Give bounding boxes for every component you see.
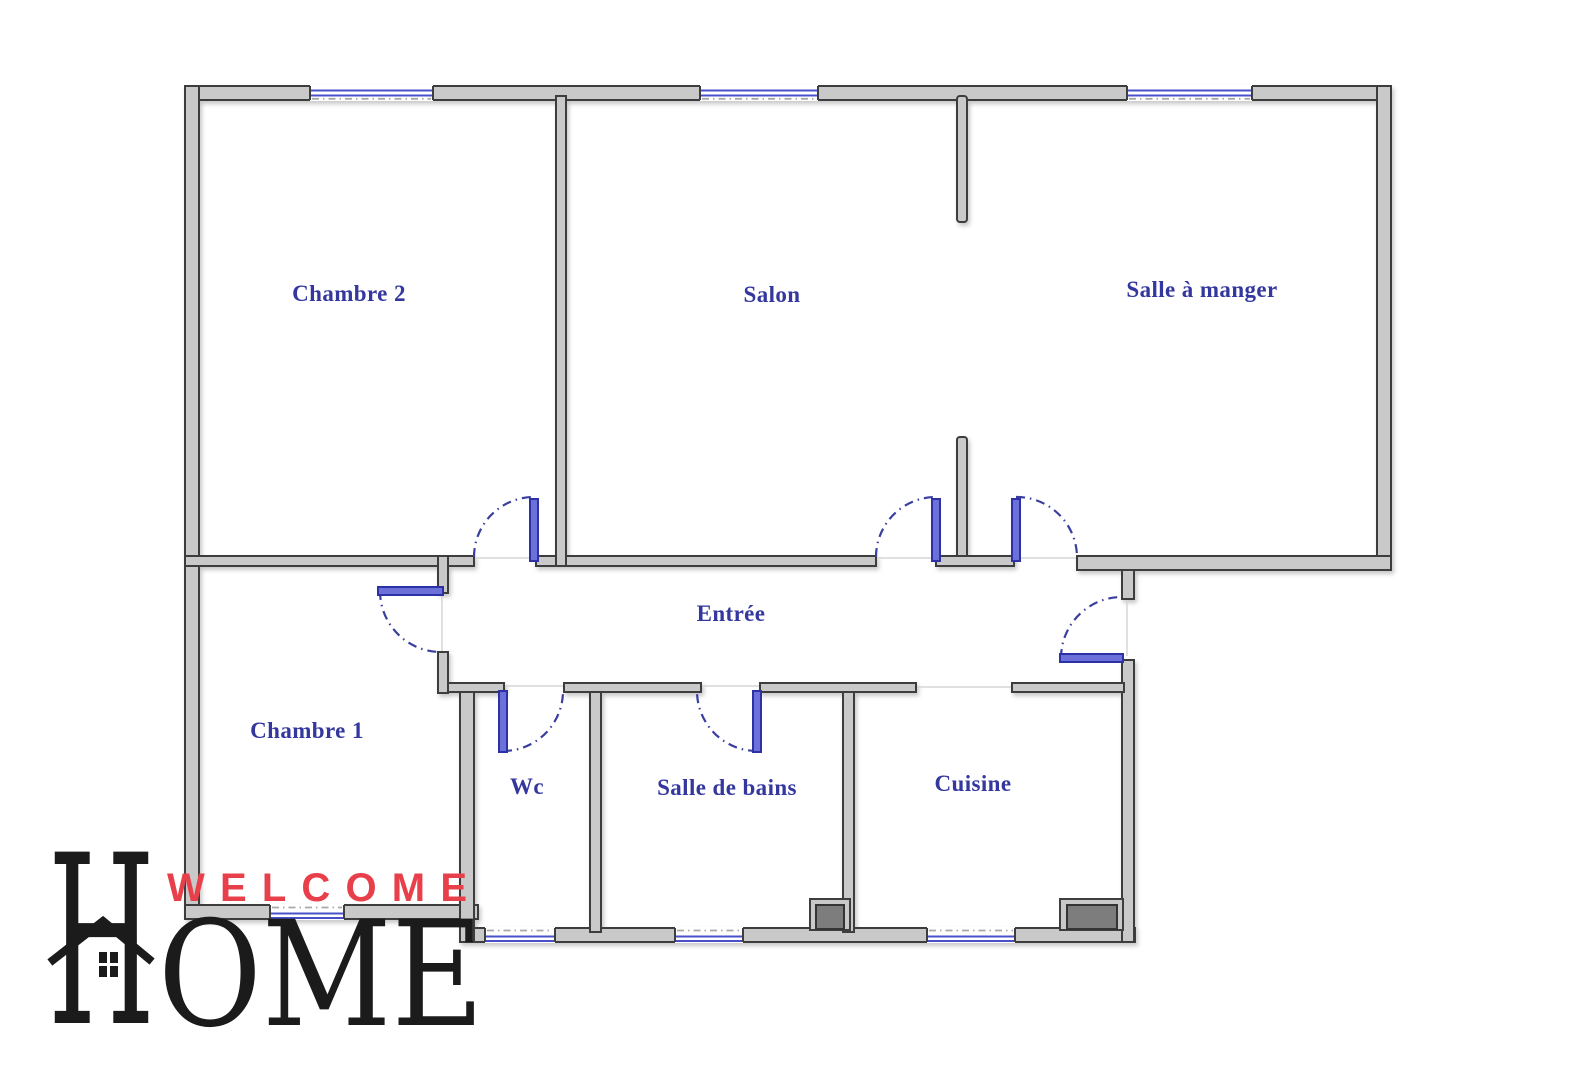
- wall-corridor-top-piece-a: [448, 556, 474, 566]
- wall-exterior-right: [1377, 86, 1391, 570]
- opening-sill-lines: [442, 558, 1127, 687]
- room-label-entree: Entrée: [697, 601, 766, 627]
- wall-corridor-bottom-a: [448, 683, 504, 692]
- door-arc-bedroom1: [380, 591, 441, 652]
- wall-exterior-left: [185, 86, 199, 919]
- logo-home-rest: OME: [158, 890, 484, 1060]
- window-dining: [1127, 85, 1252, 101]
- window-bedroom2: [310, 85, 433, 101]
- door-leaf-bedroom2: [530, 499, 538, 561]
- wall-bath-kitchen-divider: [843, 692, 854, 932]
- door-leaf-dining: [1012, 499, 1020, 561]
- room-label-salle-a-manger: Salle à manger: [1126, 277, 1277, 303]
- wall-corridor-bottom-c: [760, 683, 916, 692]
- wall-frontdoor-stub: [1122, 570, 1134, 599]
- wall-bottom-lower: [460, 928, 1135, 942]
- fixtures: [810, 899, 1123, 930]
- logo: H OME WELCOME: [48, 806, 484, 1068]
- door-arc-bedroom2: [474, 497, 534, 557]
- wall-corridor-bottom-b: [564, 683, 701, 692]
- window-kitchen: [927, 927, 1015, 943]
- floorplan-page: H OME WELCOME Chambre 2 Salon Salle à ma…: [0, 0, 1591, 1068]
- bathroom-flue-block: [816, 905, 844, 929]
- wall-dining-bottom: [1077, 556, 1391, 570]
- windows: [270, 85, 1252, 943]
- window-bathroom: [675, 927, 743, 943]
- wall-corridor-bottom-d: [1012, 683, 1124, 692]
- door-arc-bathroom: [697, 691, 757, 751]
- door-arc-wc: [503, 691, 563, 751]
- room-label-wc: Wc: [510, 774, 544, 800]
- door-leaf-bathroom: [753, 691, 761, 752]
- window-salon: [700, 85, 818, 101]
- wall-corridor-top-long: [536, 556, 876, 566]
- walls: [185, 86, 1391, 942]
- room-label-chambre-2: Chambre 2: [292, 281, 406, 307]
- room-label-cuisine: Cuisine: [935, 771, 1012, 797]
- wall-corridor-left-lower: [438, 652, 448, 693]
- wall-corridor-top-piece-b: [936, 556, 1014, 566]
- door-arc-dining: [1016, 497, 1077, 557]
- wall-bedroom2-salon-divider: [556, 96, 566, 566]
- floor-plan: H OME WELCOME: [0, 0, 1591, 1068]
- door-leaf-entrance: [1060, 654, 1123, 662]
- room-label-salon: Salon: [744, 282, 801, 308]
- door-leaf-bedroom1: [378, 587, 443, 595]
- window-wc: [485, 927, 555, 943]
- room-label-salle-de-bains: Salle de bains: [657, 775, 797, 801]
- kitchen-flue-block: [1067, 905, 1117, 929]
- door-leaf-wc: [499, 691, 507, 752]
- door-arc-entrance: [1061, 597, 1122, 658]
- door-arc-salon: [876, 497, 936, 557]
- wall-bedrooms-divider: [185, 556, 448, 566]
- door-leaf-salon: [932, 499, 940, 561]
- wall-salon-dining-stub-lower: [957, 437, 967, 560]
- logo-home-initial: H: [48, 806, 155, 1068]
- wall-salon-dining-stub-upper: [957, 96, 967, 222]
- room-label-chambre-1: Chambre 1: [250, 718, 364, 744]
- wall-wc-bath-divider: [590, 692, 601, 932]
